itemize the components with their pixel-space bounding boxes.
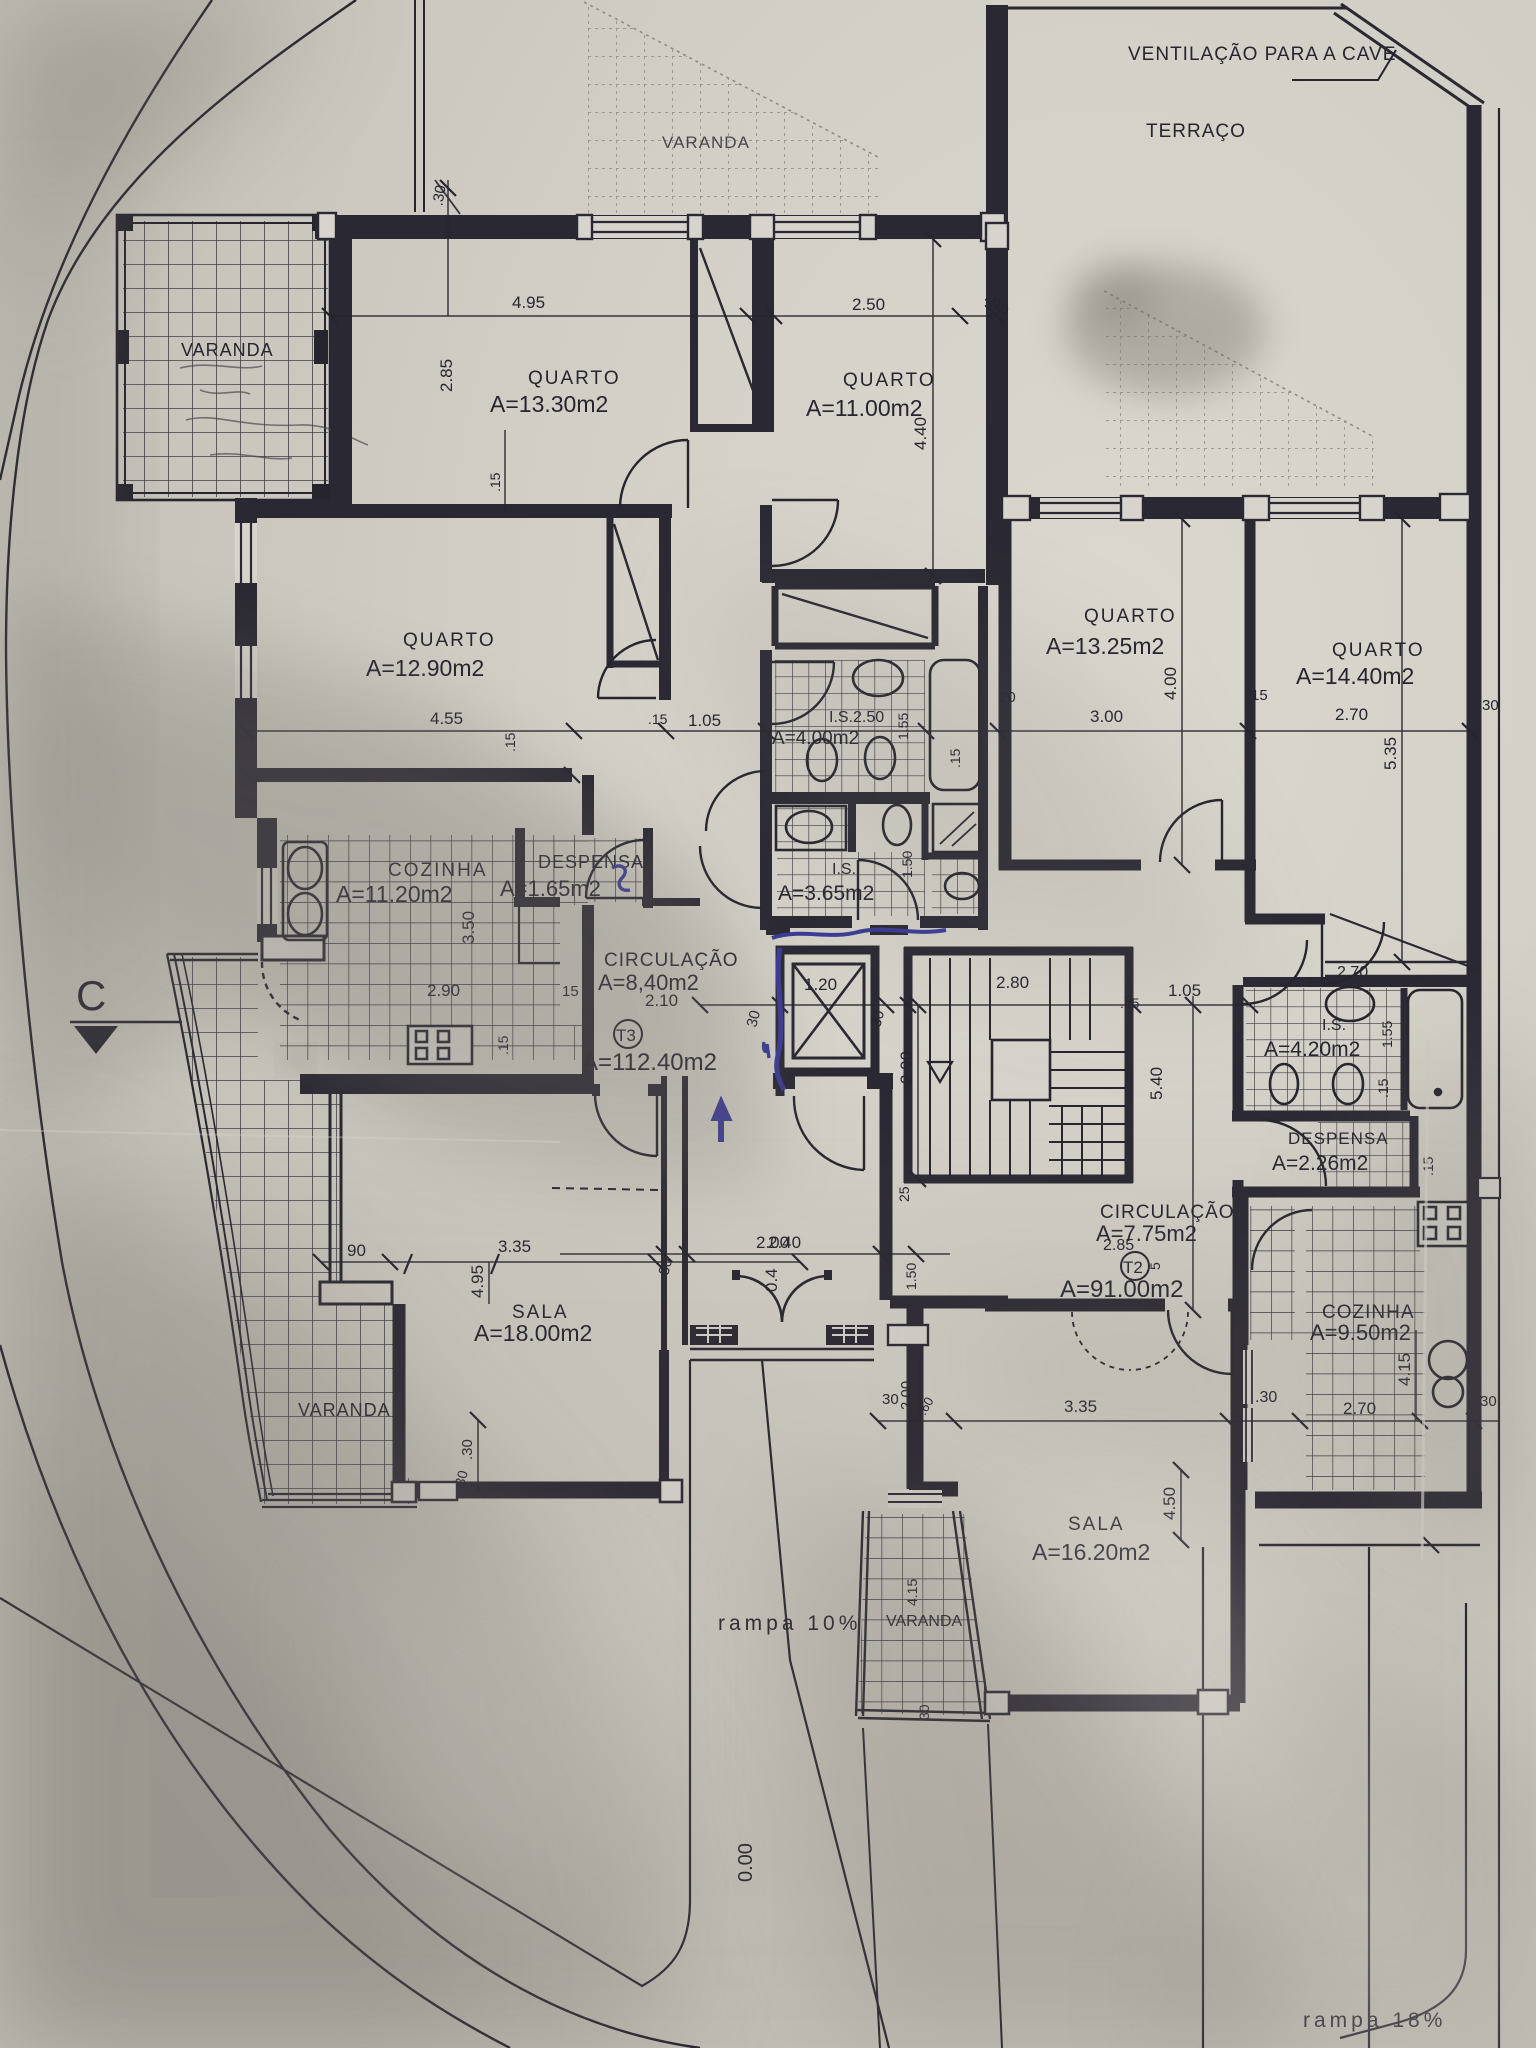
svg-text:VARANDA: VARANDA — [181, 340, 274, 360]
svg-text:5.40: 5.40 — [1147, 1067, 1166, 1100]
svg-text:30: 30 — [992, 301, 1009, 318]
svg-text:A=4.20m2: A=4.20m2 — [1264, 1038, 1360, 1061]
svg-text:4.95: 4.95 — [512, 293, 545, 312]
svg-text:30: 30 — [1482, 697, 1499, 714]
svg-text:A=14.40m2: A=14.40m2 — [1296, 663, 1414, 689]
svg-text:2.70: 2.70 — [1335, 705, 1368, 724]
svg-text:A=13.30m2: A=13.30m2 — [490, 391, 608, 417]
svg-text:VENTILAÇÃO PARA A CAVE: VENTILAÇÃO PARA A CAVE — [1128, 43, 1396, 65]
svg-text:QUARTO: QUARTO — [403, 630, 496, 651]
svg-text:DESPENSA: DESPENSA — [1288, 1129, 1389, 1148]
svg-text:A=11.00m2: A=11.00m2 — [806, 395, 923, 421]
svg-text:.15: .15 — [648, 711, 668, 727]
svg-text:.15: .15 — [1375, 1078, 1391, 1098]
svg-text:QUARTO: QUARTO — [1332, 640, 1425, 661]
svg-text:4.00: 4.00 — [1161, 667, 1180, 700]
svg-text:2.50: 2.50 — [852, 295, 885, 314]
svg-text:1.05: 1.05 — [688, 711, 721, 730]
svg-text:4.40: 4.40 — [911, 417, 930, 450]
svg-text:VARANDA: VARANDA — [662, 133, 750, 152]
svg-text:QUARTO: QUARTO — [528, 368, 621, 389]
svg-text:2.90: 2.90 — [897, 1051, 916, 1084]
svg-text:QUARTO: QUARTO — [843, 370, 936, 391]
svg-text:2.85: 2.85 — [437, 359, 456, 392]
svg-text:1.55: 1.55 — [1379, 1021, 1395, 1048]
svg-text:5.35: 5.35 — [1381, 737, 1400, 770]
svg-text:15: 15 — [1251, 687, 1268, 704]
svg-text:1.20: 1.20 — [804, 975, 837, 994]
svg-text:.15: .15 — [487, 472, 503, 492]
svg-text:2.70: 2.70 — [1337, 964, 1368, 981]
svg-text:A=12.90m2: A=12.90m2 — [366, 655, 484, 681]
svg-text:I.S.: I.S. — [1322, 1017, 1346, 1034]
svg-text:.25: .25 — [1120, 995, 1140, 1011]
svg-text:2.80: 2.80 — [996, 973, 1029, 992]
svg-text:QUARTO: QUARTO — [1084, 606, 1177, 627]
svg-text:.30: .30 — [429, 184, 449, 207]
svg-text:TERRAÇO: TERRAÇO — [1146, 121, 1246, 142]
